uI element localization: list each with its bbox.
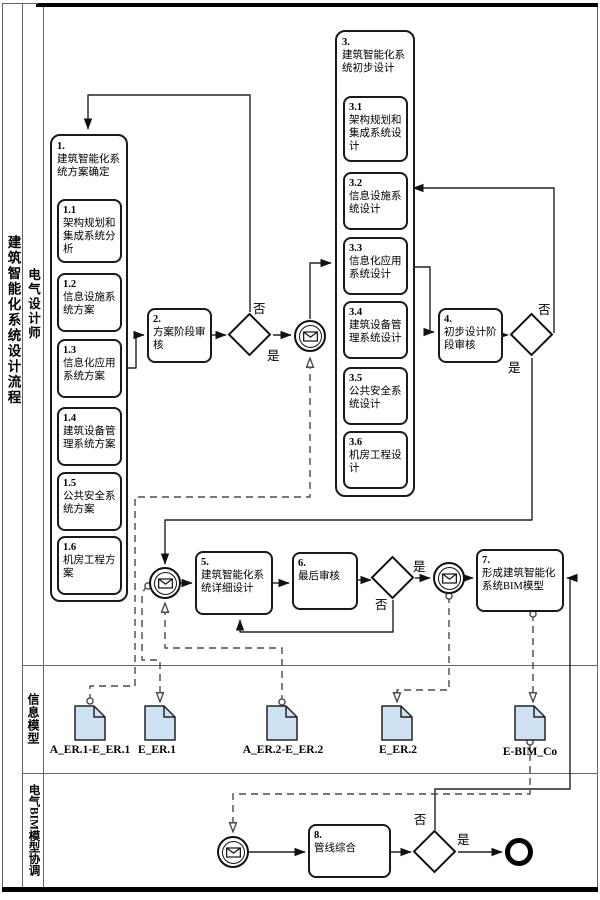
message-event-3 [433,562,465,594]
flow-group1-to-task2 [127,335,144,368]
task-6: 6.最后审核 [292,552,358,610]
task-2: 2.方案阶段审核 [147,308,212,363]
document-icon [75,706,105,740]
document-label-4: E_ER.2 [343,744,453,756]
sub-task-1-6: 1.6机房工程方案 [57,536,122,595]
label-no-gateway3: 否 [375,594,388,613]
sub-task-3-5: 3.5公共安全系统设计 [343,367,408,425]
lane-label-bim-coordination: 电气BIM模型协调 [24,774,43,886]
assoc-event2-to-doc2 [142,586,160,701]
sub-task-3-1: 3.1架构规划和集成系统设计 [343,96,408,162]
assoc-event3-to-doc4 [397,596,449,701]
task-4: 4.初步设计阶段审核 [438,308,503,363]
document-label-2: E_ER.1 [102,744,212,756]
lane-label-information-model: 信息模型 [24,666,43,772]
label-no-gateway2: 否 [538,299,551,318]
bpmn-diagram: 建筑智能化系统设计流程 电气设计师 信息模型 电气BIM模型协调 [0,0,600,900]
flow-no-loop-to-task7 [435,578,570,830]
document-label-5: E-BIM_Co [475,746,585,758]
label-yes-gateway4: 是 [457,829,470,848]
message-icon [226,847,241,858]
document-label-3: A_ER.2-E_ER.2 [228,744,338,756]
sub-task-1-4: 1.4建筑设备管理系统方案 [57,407,122,466]
label-no-gateway4: 否 [414,809,427,828]
document-icon [267,706,297,740]
message-event-4 [217,836,249,868]
message-icon [158,578,173,589]
lane-label-electrical-designer: 电气设计师 [24,7,43,602]
document-icon [515,706,545,740]
task-5: 5.建筑智能化系统详细设计 [195,551,273,615]
pool-title-text: 建筑智能化系统设计流程 [3,235,23,406]
end-event [505,838,533,866]
message-icon [303,331,318,342]
sub-task-1-3: 1.3信息化应用系统方案 [57,339,122,398]
pool-title: 建筑智能化系统设计流程 [3,60,22,580]
sub-task-3-2: 3.2信息设施系统设计 [343,172,408,230]
label-no-gateway1: 否 [253,298,266,317]
flow-group3-to-task4 [415,267,434,332]
label-yes-gateway3: 是 [413,556,426,575]
sub-task-1-2: 1.2信息设施系统方案 [57,273,122,332]
document-icon [382,706,412,740]
sub-task-1-1: 1.1架构规划和集成系统分析 [57,199,122,263]
assoc-doc3-to-event2 [165,604,282,702]
sub-task-3-4: 3.4建筑设备管理系统设计 [343,301,408,359]
sub-task-3-6: 3.6机房工程设计 [343,431,408,489]
task-8: 8.管线综合 [308,824,391,878]
flow-event1-to-group3 [310,263,331,319]
task-7: 7.形成建筑智能化系统BIM模型 [476,549,564,612]
label-yes-gateway2: 是 [508,357,521,376]
sub-task-1-5: 1.5公共安全系统方案 [57,472,122,531]
label-yes-gateway1: 是 [267,345,280,364]
sub-task-3-3: 3.3信息化应用系统设计 [343,237,408,295]
document-shapes [75,706,545,740]
message-icon [442,573,457,584]
message-event-1 [294,320,326,352]
message-event-2 [149,567,181,599]
document-icon [145,706,175,740]
